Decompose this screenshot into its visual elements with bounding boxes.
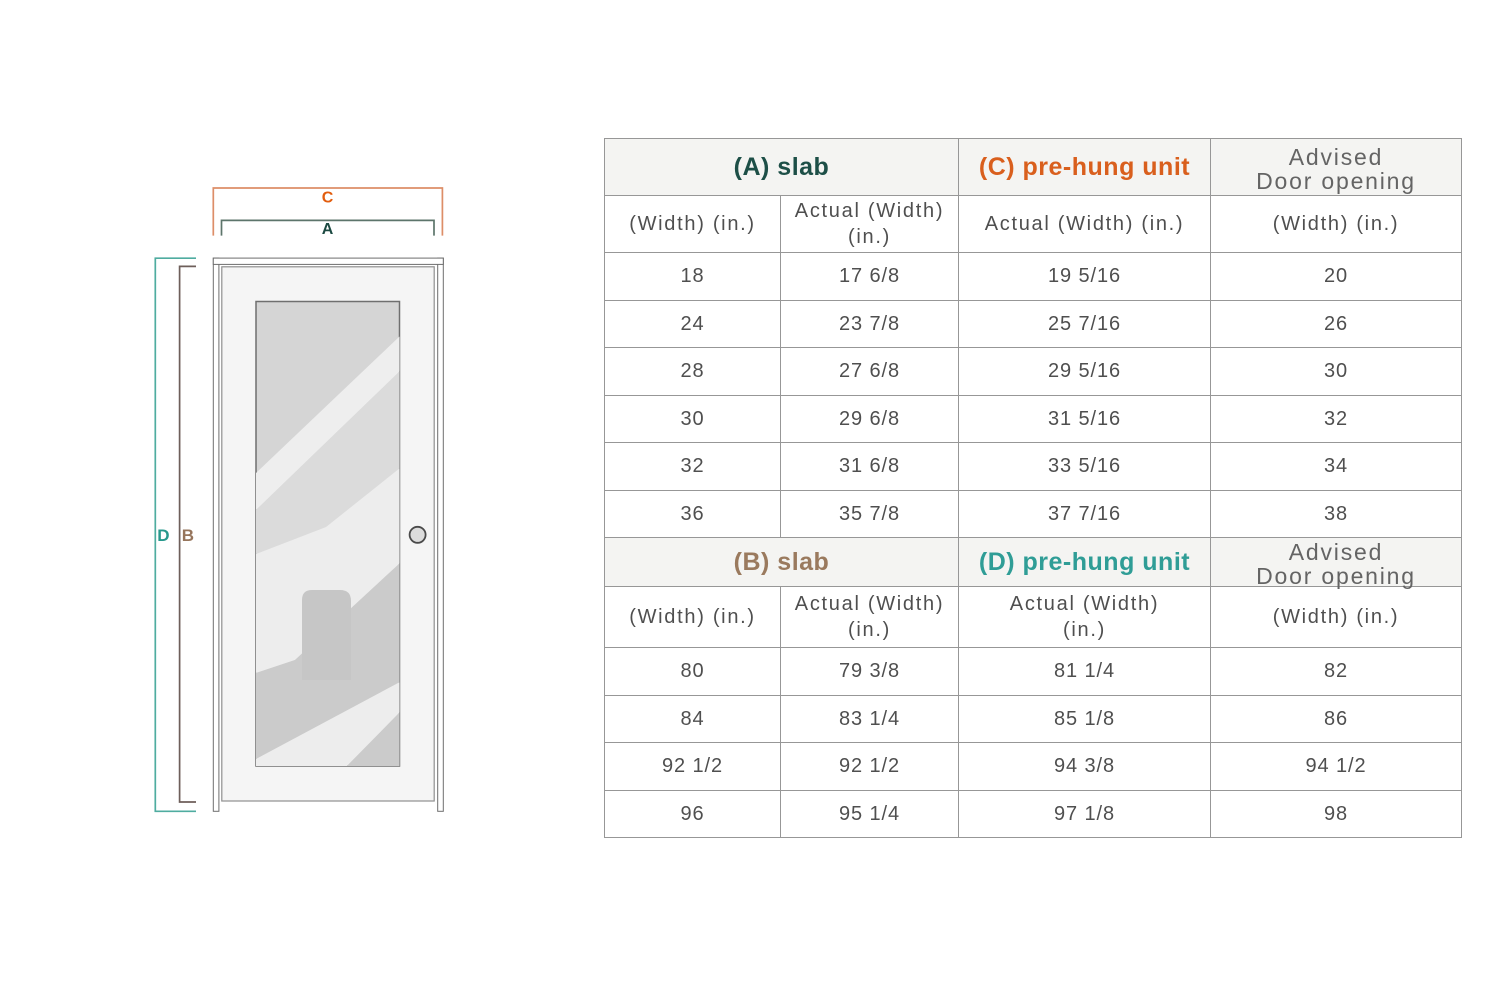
svg-text:D: D [157, 526, 169, 545]
svg-text:C: C [322, 190, 334, 207]
svg-text:B: B [182, 526, 194, 545]
svg-text:A: A [322, 221, 334, 238]
